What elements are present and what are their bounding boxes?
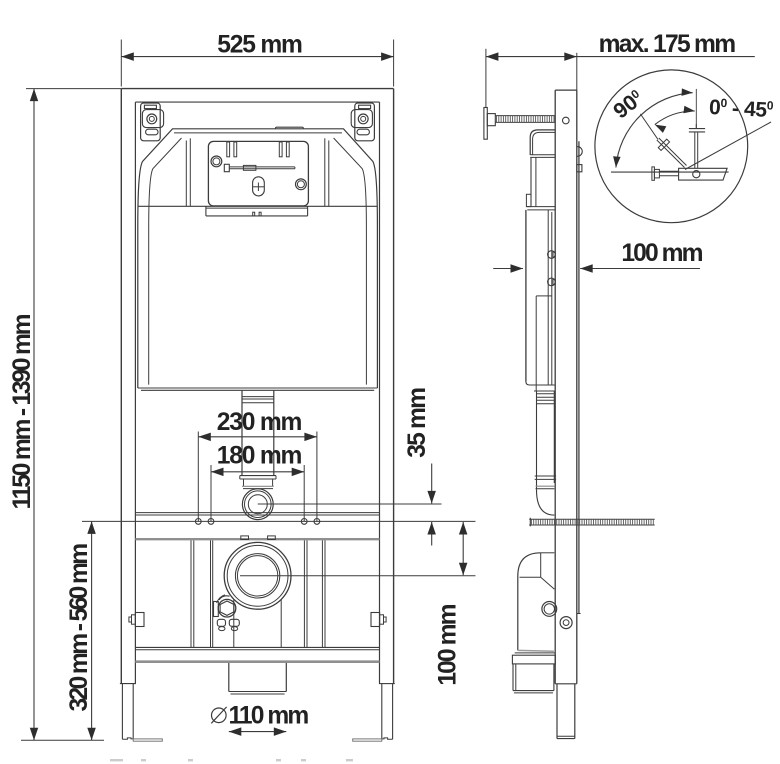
svg-text:525 mm: 525 mm bbox=[217, 31, 302, 58]
svg-text:1150 mm - 1390 mm: 1150 mm - 1390 mm bbox=[9, 314, 36, 509]
svg-text:max. 175 mm: max. 175 mm bbox=[599, 31, 736, 58]
svg-text:100 mm: 100 mm bbox=[621, 240, 702, 267]
svg-text:320 mm - 560 mm: 320 mm - 560 mm bbox=[66, 544, 93, 712]
svg-text:900: 900 bbox=[609, 86, 648, 124]
svg-text:180 mm: 180 mm bbox=[217, 442, 302, 469]
svg-text:00 - 450: 00 - 450 bbox=[708, 95, 774, 122]
svg-text:110 mm: 110 mm bbox=[229, 703, 309, 730]
svg-text:35 mm: 35 mm bbox=[404, 388, 431, 458]
svg-text:100 mm: 100 mm bbox=[434, 604, 461, 685]
svg-text:230 mm: 230 mm bbox=[217, 409, 302, 436]
